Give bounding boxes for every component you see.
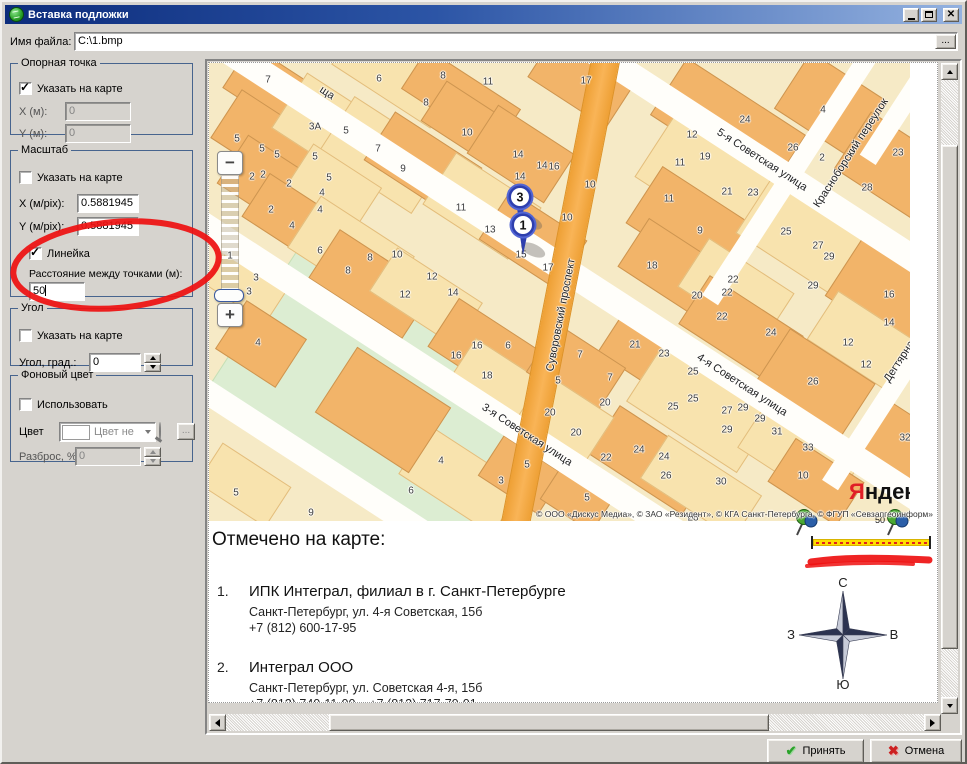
legend-item-name: Интеграл ООО bbox=[249, 659, 482, 676]
house-number: 4 bbox=[438, 456, 444, 467]
house-number: 4 bbox=[820, 105, 826, 116]
house-number: 6 bbox=[317, 246, 323, 257]
color-combobox[interactable]: Цвет не bbox=[59, 422, 156, 442]
yandex-logo: Яндекс bbox=[849, 479, 910, 505]
spread-label: Разброс, %: bbox=[19, 451, 80, 463]
ruler-label: Линейка bbox=[47, 248, 90, 260]
house-number: 13 bbox=[484, 225, 495, 236]
house-number: 6 bbox=[376, 74, 382, 85]
house-number: 12 bbox=[686, 130, 697, 141]
anchor-pick-on-map-checkbox[interactable] bbox=[19, 82, 32, 95]
map-canvas[interactable]: − 1 + Яндекс ща5-я Советская улицаКрасно… bbox=[209, 63, 910, 521]
house-number: 8 bbox=[423, 98, 429, 109]
house-number: 18 bbox=[646, 261, 657, 272]
house-number: 19 bbox=[699, 152, 710, 163]
red-underline-annotation bbox=[805, 551, 935, 573]
chevron-down-icon bbox=[145, 430, 151, 434]
text-caret bbox=[45, 285, 46, 296]
legend-item-address: Санкт-Петербург, ул. 4-я Советская, 15б bbox=[249, 604, 566, 620]
spin-up-icon bbox=[150, 356, 156, 360]
house-number: 12 bbox=[399, 290, 410, 301]
house-number: 29 bbox=[721, 425, 732, 436]
ruler-end-tick bbox=[929, 536, 931, 549]
house-number: 4 bbox=[255, 338, 261, 349]
house-number: 6 bbox=[505, 341, 511, 352]
anchor-x-label: X (м): bbox=[19, 106, 47, 118]
zoom-slider-thumb[interactable] bbox=[214, 289, 244, 302]
scroll-up-button[interactable] bbox=[941, 63, 958, 80]
close-icon: ✕ bbox=[947, 10, 955, 20]
legend-title: Отмечено на карте: bbox=[212, 529, 385, 551]
scale-y-label: Y (м/pix): bbox=[19, 221, 64, 233]
house-number: 2 bbox=[249, 172, 255, 183]
compass-north-label: С bbox=[838, 577, 847, 590]
house-number: 21 bbox=[629, 340, 640, 351]
compass-east-label: В bbox=[890, 627, 899, 642]
house-number: 20 bbox=[544, 408, 555, 419]
file-name-field[interactable]: C:\1.bmp bbox=[74, 32, 958, 51]
house-number: 33 bbox=[802, 443, 813, 454]
arrow-down-icon bbox=[947, 704, 953, 708]
map-copyright: © ООО «Дискус Медиа», © ЗАО «Резидент», … bbox=[536, 509, 933, 519]
house-number: 29 bbox=[807, 281, 818, 292]
scale-y-field[interactable]: 0.5881945 bbox=[77, 217, 139, 236]
house-number: 11 bbox=[675, 158, 685, 169]
house-number: 24 bbox=[739, 115, 750, 126]
house-number: 25 bbox=[667, 402, 678, 413]
maximize-button[interactable] bbox=[921, 8, 937, 22]
house-number: 25 bbox=[687, 394, 698, 405]
house-number: 16 bbox=[450, 351, 461, 362]
minimize-icon bbox=[908, 10, 915, 20]
anchor-x-field: 0 bbox=[65, 102, 131, 121]
house-number: 29 bbox=[737, 403, 748, 414]
house-number: 8 bbox=[440, 71, 446, 82]
arrow-left-icon bbox=[215, 719, 220, 727]
x-icon: ✖ bbox=[888, 743, 899, 759]
scale-x-field[interactable]: 0.5881945 bbox=[77, 194, 139, 213]
legend-items: 1. ИПК Интеграл, филиал в г. Санкт-Петер… bbox=[217, 583, 717, 703]
house-number: 16 bbox=[883, 290, 894, 301]
house-number: 7 bbox=[265, 75, 271, 86]
anchor-y-field: 0 bbox=[65, 124, 131, 143]
house-number: 24 bbox=[658, 452, 669, 463]
legend-item: 2. Интеграл ООО Санкт-Петербург, ул. Сов… bbox=[217, 659, 717, 703]
house-number: 5 bbox=[524, 460, 530, 471]
zoom-level-label: 1 bbox=[227, 251, 233, 262]
anchor-point-group: Опорная точка Указать на карте X (м): 0 … bbox=[10, 57, 193, 135]
angle-group: Угол Указать на карте Угол, град.: 0 bbox=[10, 302, 193, 366]
check-icon: ✔ bbox=[786, 743, 797, 759]
svg-text:3: 3 bbox=[517, 191, 524, 205]
angle-pick-on-map-checkbox[interactable] bbox=[19, 329, 32, 342]
house-number: 12 bbox=[426, 272, 437, 283]
house-number: 4 bbox=[319, 188, 325, 199]
house-number: 5 bbox=[233, 488, 239, 499]
maximize-icon bbox=[925, 11, 933, 18]
house-number: 3А bbox=[309, 122, 321, 133]
background-color-legend: Фоновый цвет bbox=[18, 369, 96, 381]
house-number: 22 bbox=[721, 288, 732, 299]
ruler-checkbox[interactable] bbox=[29, 247, 42, 260]
scroll-left-button[interactable] bbox=[209, 714, 226, 731]
house-number: 9 bbox=[697, 226, 703, 237]
zoom-out-button[interactable]: − bbox=[217, 151, 243, 175]
house-number: 27 bbox=[812, 241, 823, 252]
house-number: 4 bbox=[289, 221, 295, 232]
use-background-label: Использовать bbox=[37, 399, 108, 411]
scale-legend: Масштаб bbox=[18, 144, 71, 156]
insert-underlay-dialog: Вставка подложки ✕ Имя файла: C:\1.bmp .… bbox=[0, 0, 967, 764]
house-number: 12 bbox=[860, 360, 871, 371]
house-number: 7 bbox=[577, 350, 583, 361]
house-number: 7 bbox=[375, 144, 381, 155]
minimize-button[interactable] bbox=[903, 8, 919, 22]
horizontal-scrollbar[interactable] bbox=[209, 714, 941, 731]
house-number: 22 bbox=[727, 275, 738, 286]
house-number: 29 bbox=[754, 414, 765, 425]
house-number: 12 bbox=[842, 338, 853, 349]
color-swatch bbox=[62, 425, 90, 440]
spread-spin-up bbox=[144, 447, 161, 457]
title-bar[interactable]: Вставка подложки ✕ bbox=[5, 5, 962, 24]
compass-west-label: З bbox=[787, 627, 795, 642]
house-number: 5 bbox=[326, 173, 332, 184]
legend-item: 1. ИПК Интеграл, филиал в г. Санкт-Петер… bbox=[217, 583, 717, 636]
distance-label: Расстояние между точками (м): bbox=[29, 268, 182, 280]
scale-x-label: X (м/pix): bbox=[19, 198, 64, 210]
house-number: 3 bbox=[253, 273, 259, 284]
map-marker[interactable]: 1 bbox=[504, 209, 546, 267]
angle-spin-up[interactable] bbox=[144, 353, 161, 363]
house-number: 27 bbox=[721, 406, 732, 417]
spread-spin-down bbox=[144, 457, 161, 467]
house-number: 31 bbox=[771, 427, 782, 438]
house-number: 14 bbox=[512, 150, 523, 161]
legend-item-name: ИПК Интеграл, филиал в г. Санкт-Петербур… bbox=[249, 583, 566, 600]
compass-south-label: Ю bbox=[836, 677, 849, 689]
house-number: 22 bbox=[600, 453, 611, 464]
house-number: 29 bbox=[823, 252, 834, 263]
legend-item-phones: +7 (812) 740-11-00 +7 (812) 717-70-01 bbox=[249, 696, 482, 703]
house-number: 26 bbox=[787, 143, 798, 154]
spread-field: 0 bbox=[75, 447, 141, 466]
house-number: 14 bbox=[536, 161, 547, 172]
house-number: 26 bbox=[807, 377, 818, 388]
house-number: 8 bbox=[367, 253, 373, 264]
house-number: 11 bbox=[664, 194, 674, 205]
compass-rose-icon: С Ю З В bbox=[787, 577, 899, 689]
file-name-label: Имя файла: bbox=[10, 36, 71, 48]
spin-down-icon bbox=[150, 459, 156, 463]
house-number: 16 bbox=[471, 341, 482, 352]
house-number: 8 bbox=[345, 266, 351, 277]
house-number: 5 bbox=[312, 152, 318, 163]
anchor-y-label: Y (м): bbox=[19, 128, 47, 140]
house-number: 23 bbox=[892, 148, 903, 159]
house-number: 5 bbox=[584, 493, 590, 504]
zoom-slider-track[interactable] bbox=[221, 175, 239, 291]
house-number: 7 bbox=[607, 373, 613, 384]
house-number: 24 bbox=[765, 328, 776, 339]
house-number: 2 bbox=[268, 205, 274, 216]
legend-item-body: ИПК Интеграл, филиал в г. Санкт-Петербур… bbox=[249, 583, 566, 636]
house-number: 17 bbox=[580, 76, 591, 87]
scale-pick-on-map-checkbox[interactable] bbox=[19, 171, 32, 184]
arrow-right-icon bbox=[930, 719, 935, 727]
house-number: 2 bbox=[260, 170, 266, 181]
house-number: 2 bbox=[286, 179, 292, 190]
scroll-right-button[interactable] bbox=[924, 714, 941, 731]
house-number: 9 bbox=[308, 508, 314, 519]
house-number: 20 bbox=[570, 428, 581, 439]
house-number: 28 bbox=[861, 183, 872, 194]
building-block bbox=[209, 443, 291, 521]
legend-item-number: 1. bbox=[217, 583, 249, 636]
house-number: 32 bbox=[899, 433, 910, 444]
house-number: 5 bbox=[555, 376, 561, 387]
anchor-pick-on-map-label: Указать на карте bbox=[37, 83, 123, 95]
house-number: 21 bbox=[721, 187, 732, 198]
spin-up-icon bbox=[150, 450, 156, 454]
house-number: 2 bbox=[819, 153, 825, 164]
house-number: 10 bbox=[584, 180, 595, 191]
house-number: 25 bbox=[780, 227, 791, 238]
scale-group: Масштаб Указать на карте X (м/pix): 0.58… bbox=[10, 144, 193, 297]
color-label: Цвет bbox=[19, 426, 44, 438]
close-button[interactable]: ✕ bbox=[943, 8, 959, 22]
window-title: Вставка подложки bbox=[28, 9, 129, 21]
angle-pick-on-map-label: Указать на карте bbox=[37, 330, 123, 342]
scale-ruler-bar bbox=[813, 539, 930, 546]
vertical-scrollbar[interactable] bbox=[941, 63, 958, 714]
house-number: 3 bbox=[246, 287, 252, 298]
scrollbar-corner bbox=[941, 714, 958, 731]
arrow-up-icon bbox=[947, 70, 953, 74]
legend-item-number: 2. bbox=[217, 659, 249, 703]
ruler-dots bbox=[816, 542, 927, 544]
angle-legend: Угол bbox=[18, 302, 47, 314]
house-number: 5 bbox=[343, 126, 349, 137]
house-number: 5 bbox=[259, 144, 265, 155]
color-combo-text: Цвет не bbox=[94, 426, 145, 438]
horizontal-scroll-thumb[interactable] bbox=[329, 714, 769, 731]
house-number: 10 bbox=[797, 471, 808, 482]
house-number: 16 bbox=[548, 162, 559, 173]
house-number: 30 bbox=[715, 477, 726, 488]
house-number: 6 bbox=[408, 486, 414, 497]
legend-item-address: Санкт-Петербург, ул. Советская 4-я, 15б bbox=[249, 680, 482, 696]
app-icon bbox=[9, 7, 24, 22]
cancel-button[interactable]: ✖Отмена bbox=[870, 739, 962, 763]
browse-file-button[interactable]: ... bbox=[935, 34, 956, 49]
house-number: 4 bbox=[317, 205, 323, 216]
preview-page: − 1 + Яндекс ща5-я Советская улицаКрасно… bbox=[208, 62, 938, 703]
house-number: 14 bbox=[883, 318, 894, 329]
house-number: 10 bbox=[561, 213, 572, 224]
house-number: 11 bbox=[456, 203, 466, 214]
house-number: 26 bbox=[660, 471, 671, 482]
legend-item-body: Интеграл ООО Санкт-Петербург, ул. Советс… bbox=[249, 659, 482, 703]
house-number: 24 bbox=[633, 445, 644, 456]
house-number: 5 bbox=[274, 150, 280, 161]
accept-button[interactable]: ✔Принять bbox=[767, 739, 864, 763]
house-number: 23 bbox=[747, 188, 758, 199]
house-number: 22 bbox=[716, 312, 727, 323]
spread-spinner bbox=[144, 447, 161, 466]
house-number: 18 bbox=[481, 371, 492, 382]
use-background-checkbox[interactable] bbox=[19, 398, 32, 411]
background-color-group: Фоновый цвет Использовать Цвет Цвет не .… bbox=[10, 369, 193, 462]
house-number: 11 bbox=[483, 77, 493, 88]
preview-panel: − 1 + Яндекс ща5-я Советская улицаКрасно… bbox=[205, 59, 962, 735]
legend-item-phones: +7 (812) 600-17-95 bbox=[249, 620, 566, 636]
house-number: 20 bbox=[691, 291, 702, 302]
scroll-down-button[interactable] bbox=[941, 697, 958, 714]
vertical-scroll-thumb[interactable] bbox=[941, 145, 958, 649]
angle-value-label: Угол, град.: bbox=[19, 357, 76, 369]
zoom-in-button[interactable]: + bbox=[217, 303, 243, 327]
house-number: 14 bbox=[447, 288, 458, 299]
anchor-point-legend: Опорная точка bbox=[18, 57, 100, 69]
house-number: 3 bbox=[498, 476, 504, 487]
house-number: 10 bbox=[391, 250, 402, 261]
house-number: 10 bbox=[461, 128, 472, 139]
color-picker-icon[interactable] bbox=[159, 422, 161, 441]
house-number: 5 bbox=[234, 134, 240, 145]
color-browse-button[interactable]: ... bbox=[177, 423, 195, 440]
house-number: 25 bbox=[687, 367, 698, 378]
house-number: 20 bbox=[599, 398, 610, 409]
house-number: 9 bbox=[400, 164, 406, 175]
svg-text:1: 1 bbox=[520, 219, 527, 233]
distance-field[interactable]: 50 bbox=[29, 282, 85, 301]
scale-pick-on-map-label: Указать на карте bbox=[37, 172, 123, 184]
house-number: 23 bbox=[658, 349, 669, 360]
